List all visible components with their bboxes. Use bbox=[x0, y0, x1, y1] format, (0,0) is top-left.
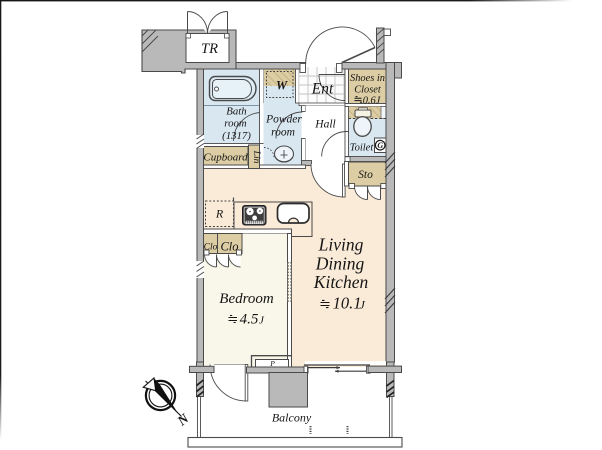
svg-text:Bath: Bath bbox=[226, 106, 246, 118]
svg-text:room: room bbox=[271, 127, 295, 139]
svg-text:4.5: 4.5 bbox=[240, 312, 259, 328]
svg-text:Ent: Ent bbox=[311, 81, 334, 98]
svg-text:R: R bbox=[215, 207, 224, 221]
svg-text:Shoes in: Shoes in bbox=[350, 73, 385, 84]
svg-text:J: J bbox=[360, 298, 366, 312]
svg-text:(1317): (1317) bbox=[222, 130, 251, 142]
svg-text:TR: TR bbox=[201, 41, 218, 57]
svg-text:Cupboard: Cupboard bbox=[203, 152, 248, 164]
svg-text:Bedroom: Bedroom bbox=[219, 291, 274, 307]
svg-text:room: room bbox=[224, 118, 247, 130]
svg-text:Dining: Dining bbox=[315, 254, 365, 274]
svg-text:Living: Living bbox=[318, 235, 364, 255]
svg-text:Sto: Sto bbox=[358, 169, 373, 181]
svg-text:G: G bbox=[377, 141, 383, 150]
svg-text:W: W bbox=[276, 79, 288, 93]
svg-text:Balcony: Balcony bbox=[272, 411, 312, 425]
svg-text:Kitchen: Kitchen bbox=[313, 272, 369, 292]
svg-text:Hall: Hall bbox=[314, 119, 335, 131]
svg-text:Toilet: Toilet bbox=[350, 143, 375, 154]
svg-text:0.6J: 0.6J bbox=[363, 96, 382, 107]
svg-text:Powder: Powder bbox=[265, 114, 302, 126]
svg-text:Clo: Clo bbox=[204, 243, 218, 253]
svg-text:Lin: Lin bbox=[251, 150, 261, 164]
svg-text:Closet: Closet bbox=[354, 85, 382, 96]
svg-text:Clo: Clo bbox=[220, 240, 238, 254]
svg-text:10.1: 10.1 bbox=[333, 294, 362, 313]
